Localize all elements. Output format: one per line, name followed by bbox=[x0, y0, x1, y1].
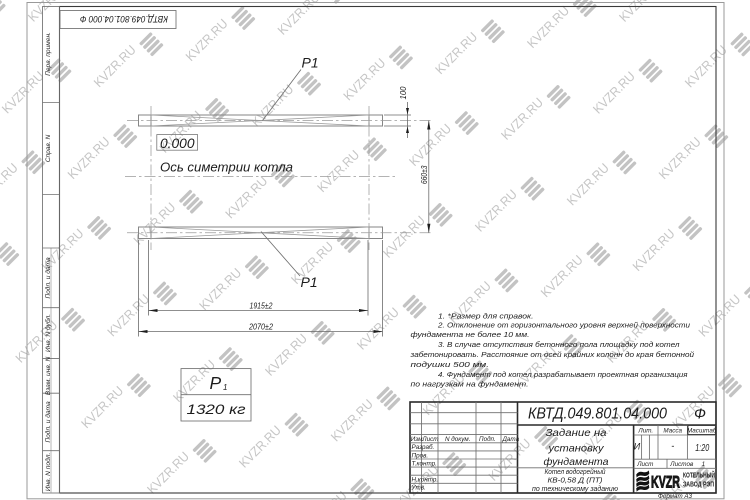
svg-text:Инв. N подл.: Инв. N подл. bbox=[44, 453, 52, 492]
svg-text:фундамента: фундамента bbox=[544, 456, 609, 468]
svg-text:Перв. примен.: Перв. примен. bbox=[45, 32, 52, 76]
svg-text:Масштаб: Масштаб bbox=[687, 426, 717, 434]
svg-text:Лист: Лист bbox=[636, 461, 653, 468]
svg-text:Р1: Р1 bbox=[302, 54, 319, 70]
svg-text:подушки 500 мм.: подушки 500 мм. bbox=[411, 360, 490, 369]
svg-text:по техническому заданию: по техническому заданию bbox=[532, 485, 619, 493]
svg-text:660±3: 660±3 bbox=[420, 165, 429, 184]
svg-text:Справ. N: Справ. N bbox=[45, 134, 52, 162]
svg-text:0.000: 0.000 bbox=[160, 136, 195, 151]
svg-text:КВТД.049.801.04.000 Ф: КВТД.049.801.04.000 Ф bbox=[80, 14, 168, 24]
svg-text:Листов: Листов bbox=[669, 461, 694, 468]
svg-text:фундамента не более 10 мм.: фундамента не более 10 мм. bbox=[411, 330, 530, 339]
svg-text:Лист: Лист bbox=[421, 436, 438, 443]
svg-text:Н.контр.: Н.контр. bbox=[412, 477, 439, 484]
svg-text:Задание на: Задание на bbox=[546, 427, 607, 439]
svg-text:Подп. и дата: Подп. и дата bbox=[44, 257, 52, 299]
svg-text:Т.контр.: Т.контр. bbox=[412, 460, 437, 467]
svg-text:1: 1 bbox=[223, 383, 227, 392]
svg-text:Дата: Дата bbox=[502, 436, 520, 443]
svg-text:1:20: 1:20 bbox=[695, 442, 709, 454]
svg-text:1. *Размер для справок.: 1. *Размер для справок. bbox=[438, 312, 534, 321]
svg-text:1915±2: 1915±2 bbox=[250, 301, 273, 310]
svg-text:Лит.: Лит. bbox=[637, 427, 653, 434]
svg-text:И: И bbox=[634, 442, 641, 452]
svg-text:Разраб.: Разраб. bbox=[412, 443, 435, 451]
svg-text:КВ-0,58 Д (ПТ): КВ-0,58 Д (ПТ) bbox=[548, 478, 603, 485]
svg-text:Р: Р bbox=[210, 373, 222, 393]
svg-text:Инв. N дубл.: Инв. N дубл. bbox=[44, 314, 52, 352]
svg-text:100: 100 bbox=[399, 86, 408, 100]
svg-text:КВТД.049.801.04.000: КВТД.049.801.04.000 bbox=[528, 406, 667, 423]
svg-text:2070±2: 2070±2 bbox=[248, 322, 273, 331]
svg-text:КОТЕЛЬНЫЙ: КОТЕЛЬНЫЙ bbox=[683, 471, 715, 480]
svg-text:забетонировать. Расстояние от: забетонировать. Расстояние от осей крайн… bbox=[409, 350, 694, 359]
svg-text:Утв.: Утв. bbox=[411, 485, 426, 492]
svg-text:-: - bbox=[671, 441, 674, 451]
svg-text:Ф: Ф bbox=[694, 406, 706, 423]
svg-text:по нагрузкам на фундамент.: по нагрузкам на фундамент. bbox=[411, 380, 529, 389]
svg-text:Пров.: Пров. bbox=[412, 452, 429, 459]
svg-text:установку: установку bbox=[547, 443, 604, 455]
svg-text:1: 1 bbox=[702, 461, 706, 468]
svg-text:1320 кг: 1320 кг bbox=[187, 402, 246, 417]
svg-text:Взам. инв. N: Взам. инв. N bbox=[45, 357, 52, 396]
svg-text:Котел водогрейный: Котел водогрейный bbox=[545, 468, 606, 476]
svg-text:Р1: Р1 bbox=[301, 274, 318, 290]
svg-text:Формат А3: Формат А3 bbox=[658, 493, 692, 500]
svg-text:2. Отклонение от горизонтально: 2. Отклонение от горизонтального уровня … bbox=[437, 321, 690, 330]
svg-text:ЗАВОД РЭП: ЗАВОД РЭП bbox=[683, 482, 714, 489]
svg-text:Ось симетрии котла: Ось симетрии котла bbox=[160, 160, 293, 175]
svg-text:Масса: Масса bbox=[663, 427, 682, 434]
svg-text:3. В случае отсутствия бетонно: 3. В случае отсутствия бетонного пола пл… bbox=[438, 340, 680, 349]
svg-text:Подп.: Подп. bbox=[479, 435, 496, 443]
svg-text:KVZR: KVZR bbox=[651, 474, 680, 492]
svg-text:N докум.: N докум. bbox=[445, 435, 470, 443]
svg-text:Подп. и дата: Подп. и дата bbox=[44, 401, 52, 443]
svg-text:4. Фундамент под котел разраба: 4. Фундамент под котел разрабатывает про… bbox=[438, 370, 688, 379]
